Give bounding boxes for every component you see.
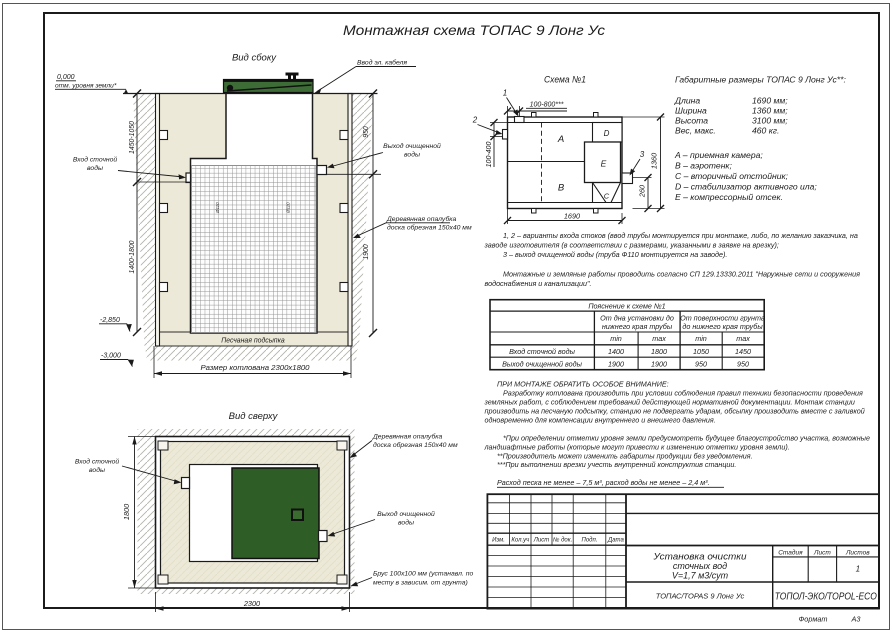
svg-text:100-800***: 100-800*** [530,102,564,109]
svg-text:Кол.уч: Кол.уч [511,538,529,544]
svg-text:земляных работ, с соблюдением: земляных работ, с соблюдением требований… [484,398,855,407]
svg-text:D – стабилизатор активного ила: D – стабилизатор активного ила; [675,182,817,192]
svg-text:Вид сбоку: Вид сбоку [232,53,277,64]
svg-text:Листов: Листов [845,550,870,557]
svg-text:2300: 2300 [243,599,260,608]
svg-text:260: 260 [638,185,647,198]
svg-text:Вид сверху: Вид сверху [229,411,279,422]
svg-text:Ø110: Ø110 [215,202,220,214]
svg-text:водоснабжения и канализации".: водоснабжения и канализации". [485,279,592,288]
svg-text:1: 1 [856,565,860,574]
svg-text:№ док.: № док. [553,537,572,544]
svg-text:max: max [736,334,750,343]
svg-text:Выход очищенной: Выход очищенной [377,510,435,518]
svg-text:V=1,7 м3/сут: V=1,7 м3/сут [672,571,729,581]
svg-text:*При определении отметки уровн: *При определении отметки уровня земли пр… [503,434,870,443]
svg-text:2: 2 [472,116,478,125]
svg-text:ТОПАС/TOPAS 9 Лонг Ус: ТОПАС/TOPAS 9 Лонг Ус [656,592,745,601]
svg-text:E: E [601,159,607,169]
svg-text:min: min [695,334,707,343]
svg-text:доска обрезная 150x40 мм: доска обрезная 150x40 мм [373,441,458,449]
svg-text:3100 мм;: 3100 мм; [752,116,788,126]
svg-text:Ширина: Ширина [675,106,707,116]
svg-text:ландшафтные работы (которые мо: ландшафтные работы (которые могут привес… [484,443,790,452]
svg-text:Длина: Длина [674,96,700,106]
svg-text:1050: 1050 [693,347,709,356]
svg-text:воды: воды [398,519,414,527]
svg-text:Расход песка не менее – 7,5 м³: Расход песка не менее – 7,5 м³, расход в… [497,478,710,487]
svg-text:ТОПОЛ-ЭКО/TOPOL-ECO: ТОПОЛ-ЭКО/TOPOL-ECO [775,592,877,603]
svg-text:-3,000: -3,000 [101,353,121,360]
svg-text:Деревянная опалубка: Деревянная опалубка [372,433,442,441]
svg-text:Монтажная схема ТОПАС 9 Лонг У: Монтажная схема ТОПАС 9 Лонг Ус [343,22,605,38]
svg-text:E – компрессорный отсек.: E – компрессорный отсек. [675,192,783,202]
svg-text:заводе изготовителя (в соответ: заводе изготовителя (в соответствии с ра… [484,241,779,250]
svg-text:Формат: Формат [799,615,828,624]
svg-text:1450: 1450 [735,347,751,356]
svg-text:B – аэротенк;: B – аэротенк; [675,161,732,171]
svg-text:3 – выход очищенной воды (труб: 3 – выход очищенной воды (труба Ф110 мон… [503,250,727,259]
svg-text:Разработку котлована производи: Разработку котлована производить при усл… [503,389,863,398]
svg-text:1690 мм;: 1690 мм; [752,96,788,106]
svg-text:Габаритные размеры ТОПАС 9 Лон: Габаритные размеры ТОПАС 9 Лонг Ус**: [675,75,846,85]
svg-text:C: C [604,192,610,201]
svg-text:1900: 1900 [651,360,667,369]
svg-text:-2,850: -2,850 [100,317,120,324]
svg-text:Вес, макс.: Вес, макс. [675,126,716,136]
svg-text:1800: 1800 [651,347,667,356]
svg-text:до нижнего края трубы: до нижнего края трубы [682,322,763,331]
svg-text:0,000: 0,000 [57,74,75,81]
svg-text:ПРИ МОНТАЖЕ ОБРАТИТЬ ОСОБОЕ ВН: ПРИ МОНТАЖЕ ОБРАТИТЬ ОСОБОЕ ВНИМАНИЕ: [497,380,669,389]
svg-text:950: 950 [737,360,749,369]
svg-text:Стадия: Стадия [778,549,803,557]
svg-text:A – приемная камера;: A – приемная камера; [674,150,763,160]
svg-text:Установка очистки: Установка очистки [652,552,746,562]
svg-text:Монтажные и земляные работы пр: Монтажные и земляные работы проводить со… [503,270,860,279]
svg-text:воды: воды [87,164,103,172]
svg-text:1690: 1690 [564,212,580,221]
svg-text:1800: 1800 [122,504,131,520]
svg-text:1900: 1900 [363,244,370,259]
svg-text:Брус 100x100 мм (устанавл. по: Брус 100x100 мм (устанавл. по [373,571,473,578]
svg-text:Ø110: Ø110 [286,202,291,214]
svg-text:Размер котлована 2300x1800: Размер котлована 2300x1800 [201,363,310,372]
svg-text:Высота: Высота [675,116,708,126]
svg-text:Выход очищенной: Выход очищенной [383,142,441,150]
svg-text:min: min [610,334,622,343]
svg-text:D: D [604,129,610,138]
svg-text:Лист: Лист [533,538,549,544]
svg-text:950: 950 [363,126,370,138]
svg-text:1450-1050: 1450-1050 [129,121,136,154]
svg-text:Вход сточной воды: Вход сточной воды [509,347,575,356]
svg-text:1360 мм;: 1360 мм; [752,106,788,116]
svg-text:1400-1800: 1400-1800 [129,240,136,273]
svg-text:1900: 1900 [608,360,624,369]
svg-text:доска обрезная 150x40 мм: доска обрезная 150x40 мм [387,224,472,232]
svg-text:Схема №1: Схема №1 [544,75,586,86]
svg-text:1360: 1360 [650,153,659,169]
svg-text:воды: воды [404,151,420,159]
svg-text:C – вторичный отстойник;: C – вторичный отстойник; [675,171,789,181]
svg-text:***При выполнении врезки учест: ***При выполнении врезки учесть внутренн… [497,460,736,469]
svg-text:месту в зависим. от грунта): месту в зависим. от грунта) [373,580,468,587]
svg-text:сточных вод: сточных вод [673,561,727,571]
svg-text:Дата: Дата [607,538,624,544]
svg-text:А3: А3 [851,615,861,624]
svg-text:1: 1 [503,89,507,98]
svg-text:1400: 1400 [608,347,624,356]
svg-text:Песчаная подсыпка: Песчаная подсыпка [221,337,285,345]
svg-text:Лист: Лист [813,550,831,557]
svg-text:одновременно для компенсации в: одновременно для компенсации внутреннего… [485,416,716,425]
svg-text:Вход сточной: Вход сточной [73,156,118,164]
svg-text:B: B [558,183,565,194]
svg-text:max: max [652,334,666,343]
svg-text:460 кг.: 460 кг. [752,126,779,136]
svg-text:Изм.: Изм. [492,538,505,544]
svg-text:отм. уровня земли*: отм. уровня земли* [55,83,117,90]
svg-text:950: 950 [695,360,707,369]
svg-text:Выход очищенной воды: Выход очищенной воды [502,360,583,369]
svg-text:1, 2 – варианты входа стоков: 1, 2 – варианты входа стоков (ввод трубы… [503,231,858,240]
svg-text:Деревянная опалубка: Деревянная опалубка [386,215,456,223]
svg-text:Вход сточной: Вход сточной [75,458,120,466]
svg-text:воды: воды [89,466,105,474]
svg-text:нижнего края трубы: нижнего края трубы [602,322,673,331]
svg-text:производить на песчаную подсып: производить на песчаную подсыпку, станци… [485,407,865,416]
svg-text:A: A [557,134,564,145]
svg-text:3: 3 [640,150,645,159]
svg-text:100-400: 100-400 [486,142,493,168]
svg-text:Подп.: Подп. [582,538,598,544]
svg-text:Ввод эл. кабеля: Ввод эл. кабеля [357,59,407,67]
svg-text:Пояснение к схеме №1: Пояснение к схеме №1 [588,302,665,311]
